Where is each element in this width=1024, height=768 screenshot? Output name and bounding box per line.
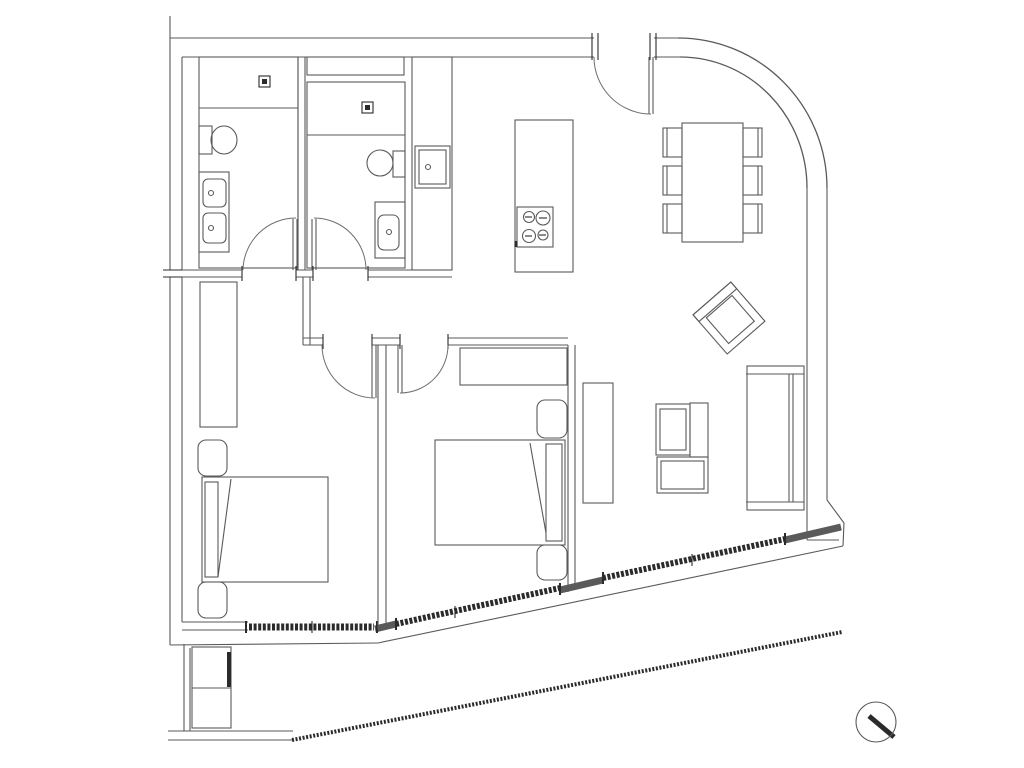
- coffee-table-narrow: [690, 403, 708, 457]
- bathroom2-niche: [307, 57, 404, 75]
- bath1-basin-2: [203, 213, 226, 243]
- window-living-band: [603, 539, 785, 578]
- bed1-bed: [202, 477, 328, 582]
- dining-chair-left-2: [663, 166, 682, 195]
- cabinet-sink-faucet: [426, 165, 431, 170]
- facade-wall-piece-c: [785, 527, 841, 540]
- bed2-nightstand-south: [537, 545, 567, 580]
- cabinet-sink-outer: [415, 146, 450, 188]
- sofa-body: [747, 366, 804, 510]
- bed2-blanket-fold: [530, 443, 546, 533]
- compass-needle: [869, 716, 894, 737]
- floor-plan-page: [0, 0, 1024, 768]
- facade-wall-piece-b: [560, 580, 603, 590]
- coffee-table-low-inner: [661, 461, 704, 489]
- coffee-table-square-inner: [660, 409, 686, 450]
- dining-chair-right-2: [743, 166, 762, 195]
- bed1-wardrobe: [200, 282, 237, 427]
- balcony-planter-dark-strip: [227, 652, 231, 687]
- bathroom2-outline: [307, 82, 405, 268]
- bath2-shower-drain-dot: [365, 105, 370, 110]
- cabinet-sink-inner: [419, 150, 446, 184]
- se-corner-outer: [827, 500, 844, 523]
- bath1-faucet-1: [209, 191, 214, 196]
- bathroom1-outline: [199, 57, 298, 268]
- door-swing-bath1: [243, 218, 296, 270]
- bed1-pillow: [205, 482, 218, 577]
- floor-plan-drawing: [0, 0, 1024, 768]
- door-swing-bed1: [322, 345, 375, 398]
- window-bedroom2-band: [396, 588, 560, 624]
- door-swing-entry: [594, 57, 651, 114]
- dining-chair-left-3: [663, 204, 682, 233]
- bed2-pillow: [546, 444, 562, 541]
- bed2-nightstand-north: [537, 400, 567, 438]
- bath1-faucet-2: [209, 226, 214, 231]
- bath2-basin: [378, 215, 399, 250]
- bath1-toilet-bowl: [211, 126, 237, 154]
- facade-outer-diag: [378, 546, 843, 643]
- dining-chair-left-1: [663, 128, 682, 157]
- bath1-basin-1: [203, 179, 226, 207]
- bath2-toilet-bowl: [367, 150, 393, 176]
- balcony-railing: [292, 632, 842, 740]
- bed1-nightstand-south: [198, 582, 227, 618]
- door-swing-bath2: [314, 218, 366, 270]
- armchair-back: [693, 282, 737, 322]
- bath2-toilet-tank: [393, 151, 405, 177]
- facade-outer-west: [170, 643, 378, 645]
- dining-chair-right-3: [743, 204, 762, 233]
- kitchen-island: [515, 120, 573, 272]
- bath1-shower-drain-dot: [262, 79, 267, 84]
- coffee-table-square-outer: [656, 404, 690, 455]
- bed2-wardrobe: [460, 348, 567, 385]
- tv-console: [583, 383, 613, 503]
- se-corner-side: [843, 523, 844, 546]
- bed1-nightstand-north: [198, 440, 227, 476]
- door-swing-bed2: [400, 345, 448, 393]
- bath1-toilet-tank: [199, 126, 212, 154]
- coffee-table-low-outer: [657, 457, 708, 493]
- bed1-blanket-fold: [218, 479, 231, 577]
- dining-chair-right-1: [743, 128, 762, 157]
- dining-table: [682, 123, 743, 242]
- bath2-faucet: [387, 230, 392, 235]
